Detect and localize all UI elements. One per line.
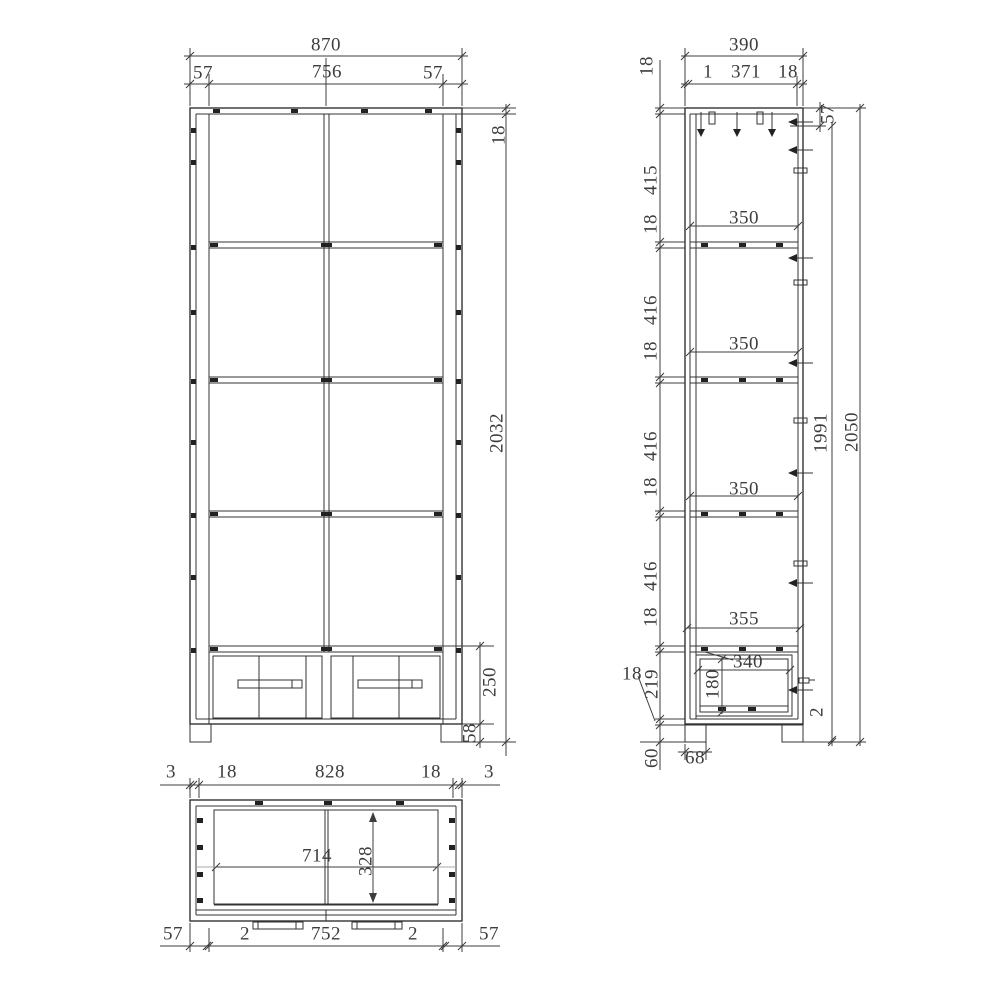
dim-label: 416 xyxy=(642,561,661,591)
dim-label: 57 xyxy=(479,925,499,944)
dim-label: 18 xyxy=(778,63,798,82)
dim-label: 57 xyxy=(163,925,183,944)
dim-label: 219 xyxy=(643,669,662,699)
drawer-fronts xyxy=(213,656,440,718)
front-view-cabinet xyxy=(190,108,462,742)
dim-label: 415 xyxy=(642,165,661,195)
dim-label: 18 xyxy=(642,214,661,234)
dim-label: 350 xyxy=(729,335,759,354)
dim-label: 180 xyxy=(704,669,723,699)
dim-label: 828 xyxy=(315,763,345,782)
dim-label: 2 xyxy=(808,707,827,717)
dim-label: 18 xyxy=(642,341,661,361)
front-view-dimensions xyxy=(184,48,516,756)
dim-label: 18 xyxy=(642,477,661,497)
dim-label: 416 xyxy=(642,431,661,461)
dim-label: 371 xyxy=(731,63,761,82)
dim-label: 58 xyxy=(461,723,480,743)
dim-label: 3 xyxy=(484,763,494,782)
dim-label: 350 xyxy=(729,209,759,228)
dim-label: 68 xyxy=(685,749,705,768)
dim-label: 355 xyxy=(729,610,759,629)
dim-label: 18 xyxy=(490,125,509,145)
side-view-cabinet xyxy=(685,108,815,742)
dim-label: 18 xyxy=(217,763,237,782)
drawing-linework xyxy=(0,0,1000,1000)
dim-label: 250 xyxy=(481,667,500,697)
dim-label: 18 xyxy=(638,56,657,76)
dim-label: 350 xyxy=(729,480,759,499)
dim-label: 328 xyxy=(357,846,376,876)
dim-label: 870 xyxy=(311,36,341,55)
dim-label: 3 xyxy=(166,763,176,782)
dim-label: 2032 xyxy=(488,413,507,453)
dim-label: 57 xyxy=(819,104,838,124)
dim-label: 18 xyxy=(622,665,642,684)
dim-label: 57 xyxy=(423,64,443,83)
dim-label: 714 xyxy=(302,847,332,866)
dim-label: 752 xyxy=(311,925,341,944)
dim-label: 390 xyxy=(729,36,759,55)
dim-label: 1 xyxy=(703,63,713,82)
dim-label: 2 xyxy=(240,925,250,944)
front-fitting-marks xyxy=(191,109,461,653)
dim-label: 2 xyxy=(408,925,418,944)
dim-label: 2050 xyxy=(843,412,862,452)
dim-label: 60 xyxy=(643,748,662,768)
technical-drawing: 870577565718203225058 390137118184151835… xyxy=(0,0,1000,1000)
dim-label: 57 xyxy=(193,64,213,83)
dim-label: 18 xyxy=(421,763,441,782)
dim-label: 340 xyxy=(733,653,763,672)
dim-label: 1991 xyxy=(812,413,831,453)
dim-label: 756 xyxy=(312,63,342,82)
dim-label: 416 xyxy=(642,295,661,325)
dim-label: 18 xyxy=(642,607,661,627)
